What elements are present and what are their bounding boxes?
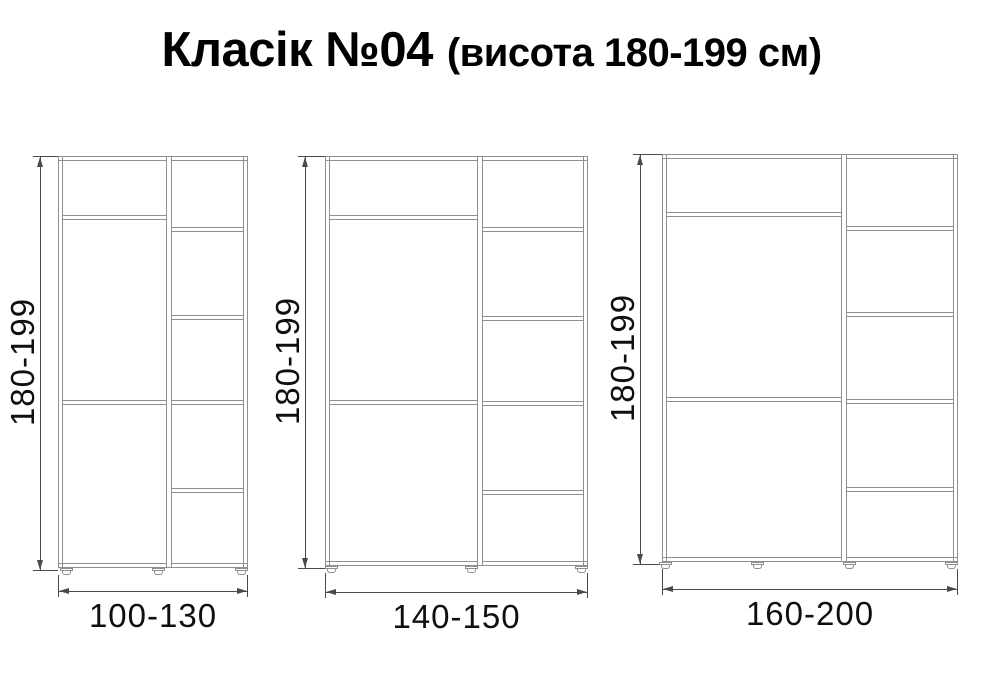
right-column-shelf <box>482 227 583 232</box>
arrow-up-icon <box>302 157 308 167</box>
center-divider <box>166 157 172 567</box>
arrow-left-icon <box>59 588 69 594</box>
arrow-left-icon <box>326 589 336 595</box>
center-divider <box>477 157 483 565</box>
diagram-page: Класік №04 (висота 180-199 см) 180-19910… <box>0 0 983 700</box>
cabinet-foot <box>751 562 764 570</box>
width-ext-line-right <box>587 573 588 598</box>
left-column-shelf <box>667 212 841 217</box>
foot-cup <box>577 569 586 573</box>
right-column-shelf <box>171 400 243 405</box>
arrow-down-icon <box>302 558 308 568</box>
height-dim-label: 180-199 <box>270 297 306 425</box>
foot-cup <box>845 565 854 569</box>
width-dim-label: 140-150 <box>325 599 588 635</box>
left-column-shelf <box>330 215 477 220</box>
arrow-left-icon <box>663 586 673 592</box>
foot-cup <box>327 569 336 573</box>
cabinet-foot <box>152 568 165 576</box>
width-dim-label: 160-200 <box>662 596 958 632</box>
height-dim-label: 180-199 <box>605 294 641 422</box>
width-dim-line <box>59 591 247 592</box>
height-ext-line-bottom <box>33 570 58 571</box>
foot-cup <box>237 571 246 575</box>
height-dim-label: 180-199 <box>5 298 41 426</box>
left-column-shelf <box>63 400 166 405</box>
width-dim-label: 100-130 <box>58 598 248 634</box>
arrow-up-icon <box>37 157 43 167</box>
top-panel-inner <box>663 158 957 159</box>
width-ext-line-right <box>957 569 958 595</box>
cabinet-foot <box>659 562 672 570</box>
foot-cup <box>154 571 163 575</box>
cabinet-foot <box>60 568 73 576</box>
width-ext-line-right <box>247 575 248 597</box>
bottom-panel-inner <box>663 557 957 558</box>
width-dim-line <box>663 589 957 590</box>
arrow-right-icon <box>237 588 247 594</box>
center-divider <box>841 155 847 561</box>
foot-cup <box>467 569 476 573</box>
left-column-shelf <box>330 400 477 405</box>
right-column-shelf <box>846 312 953 317</box>
top-panel-inner <box>59 160 247 161</box>
height-ext-line-bottom <box>298 568 325 569</box>
arrow-down-icon <box>37 560 43 570</box>
diagram-canvas: 180-199100-130180-199140-150180-199160-2… <box>0 0 983 700</box>
right-column-shelf <box>846 399 953 404</box>
top-panel-inner <box>326 160 587 161</box>
height-ext-line-bottom <box>633 564 662 565</box>
left-column-shelf <box>63 215 166 220</box>
bottom-panel-inner <box>59 563 247 564</box>
right-column-shelf <box>482 490 583 495</box>
right-column-shelf <box>846 487 953 492</box>
arrow-up-icon <box>637 155 643 165</box>
foot-cup <box>753 565 762 569</box>
left-column-shelf <box>667 397 841 402</box>
arrow-right-icon <box>947 586 957 592</box>
side-panel-inner-right <box>953 155 954 561</box>
foot-cup <box>947 565 956 569</box>
arrow-right-icon <box>577 589 587 595</box>
right-column-shelf <box>171 488 243 493</box>
cabinet-foot <box>465 566 478 574</box>
side-panel-inner-right <box>583 157 584 565</box>
arrow-down-icon <box>637 554 643 564</box>
right-column-shelf <box>482 401 583 406</box>
width-dim-line <box>326 592 587 593</box>
bottom-panel-inner <box>326 561 587 562</box>
right-column-shelf <box>171 315 243 320</box>
side-panel-inner-right <box>243 157 244 567</box>
cabinet-foot <box>325 566 338 574</box>
right-column-shelf <box>171 227 243 232</box>
cabinet-foot <box>843 562 856 570</box>
foot-cup <box>62 571 71 575</box>
right-column-shelf <box>846 226 953 231</box>
right-column-shelf <box>482 316 583 321</box>
